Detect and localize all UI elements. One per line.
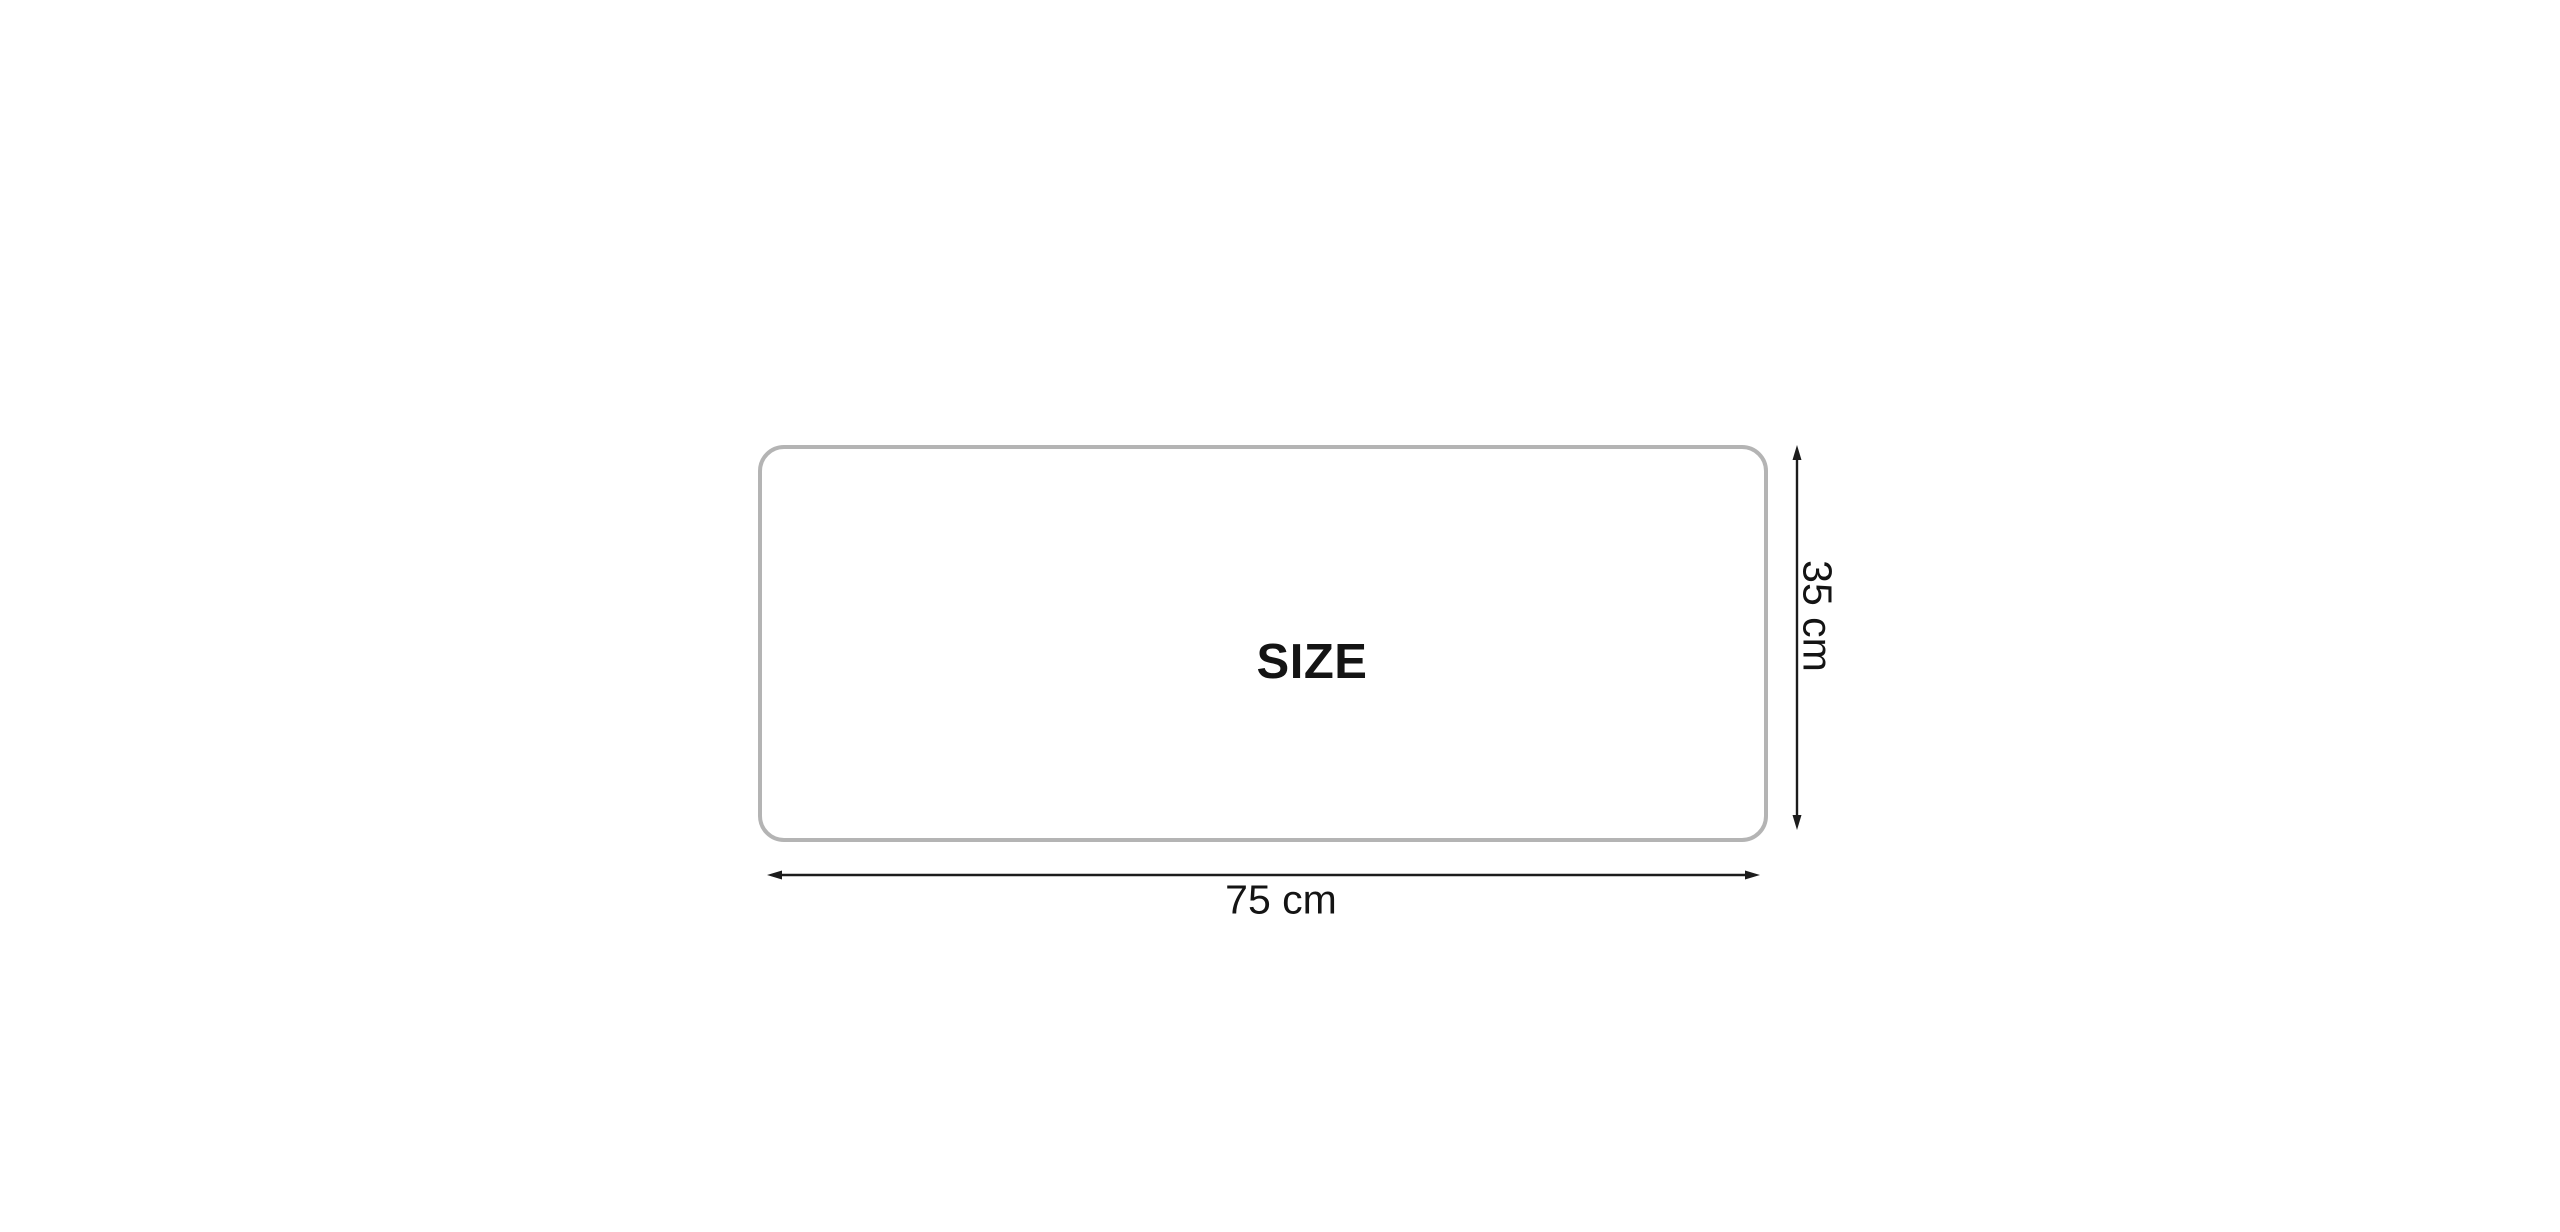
- size-diagram: SIZE 35 cm 75 cm: [0, 0, 2560, 1232]
- size-label: SIZE: [1257, 634, 1368, 690]
- arrow-up-icon: [1793, 445, 1802, 460]
- arrow-down-icon: [1793, 815, 1802, 830]
- arrow-left-icon: [767, 871, 782, 880]
- height-dimension-label: 35 cm: [1794, 560, 1841, 672]
- product-outline: SIZE: [758, 445, 1768, 842]
- arrow-right-icon: [1745, 871, 1760, 880]
- width-dimension-label: 75 cm: [1225, 877, 1337, 924]
